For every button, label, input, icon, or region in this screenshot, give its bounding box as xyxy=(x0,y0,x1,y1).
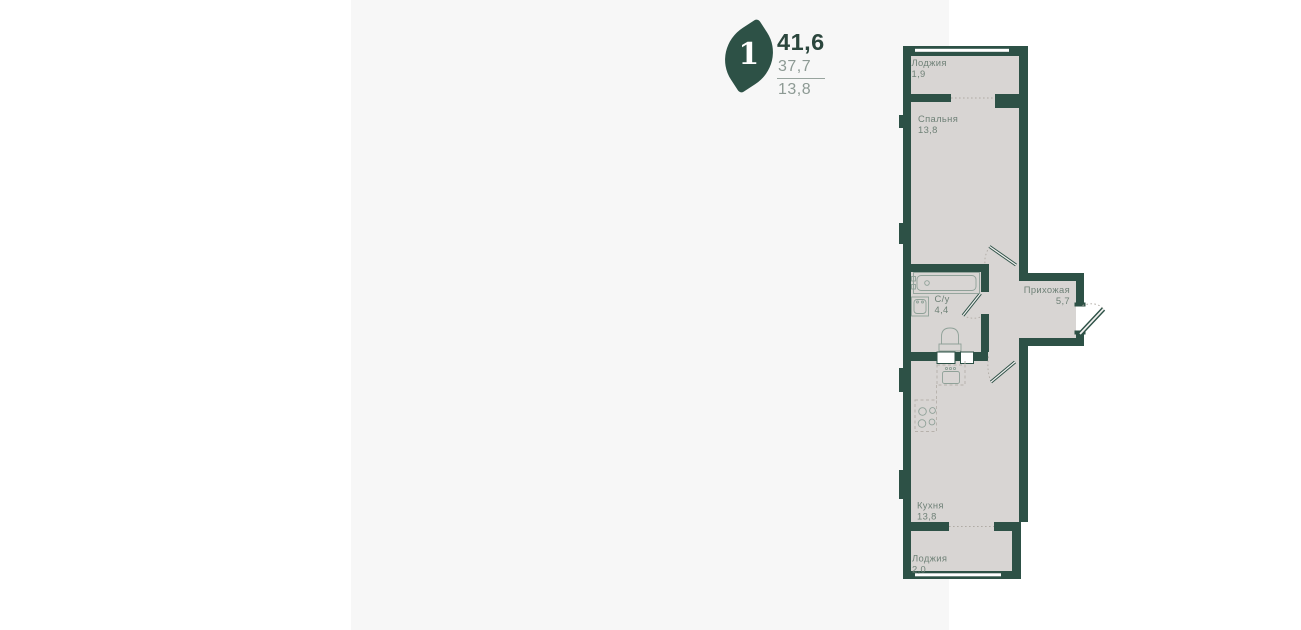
svg-text:Лоджия: Лоджия xyxy=(912,553,947,564)
duct-shaft xyxy=(961,352,974,364)
apartment-plan-card: 1 41,6 37,7 13,8 xyxy=(351,0,949,630)
floor-plan[interactable]: Лоджия 1,9 Спальня 13,8 С/у 4,4 Прихожая… xyxy=(889,38,1119,588)
svg-text:1,9: 1,9 xyxy=(912,68,926,79)
svg-text:Спальня: Спальня xyxy=(918,113,958,124)
svg-text:Прихожая: Прихожая xyxy=(1024,284,1070,295)
duct-shaft xyxy=(937,352,955,364)
window-loggia-bottom xyxy=(915,573,1001,576)
svg-text:2,0: 2,0 xyxy=(912,564,926,575)
area-summary: 41,6 37,7 13,8 xyxy=(777,31,825,98)
rooms-count-badge: 1 xyxy=(738,40,759,70)
room-label-bathroom: С/у 4,4 xyxy=(935,293,950,315)
svg-text:5,7: 5,7 xyxy=(1056,295,1070,306)
living-area-value: 37,7 xyxy=(777,59,825,79)
leaf-icon: 1 xyxy=(711,18,787,94)
page: 1 41,6 37,7 13,8 xyxy=(0,0,1301,630)
svg-text:Кухня: Кухня xyxy=(917,500,944,511)
window-loggia-top xyxy=(915,49,1009,52)
kitchen-area-value: 13,8 xyxy=(777,82,825,98)
svg-text:13,8: 13,8 xyxy=(917,511,937,522)
svg-text:4,4: 4,4 xyxy=(935,304,949,315)
svg-text:13,8: 13,8 xyxy=(918,124,938,135)
door-jamb xyxy=(1075,303,1086,307)
svg-text:Лоджия: Лоджия xyxy=(912,57,947,68)
total-area-value: 41,6 xyxy=(777,31,825,55)
entrance-door xyxy=(1080,304,1104,334)
svg-text:С/у: С/у xyxy=(935,293,950,304)
